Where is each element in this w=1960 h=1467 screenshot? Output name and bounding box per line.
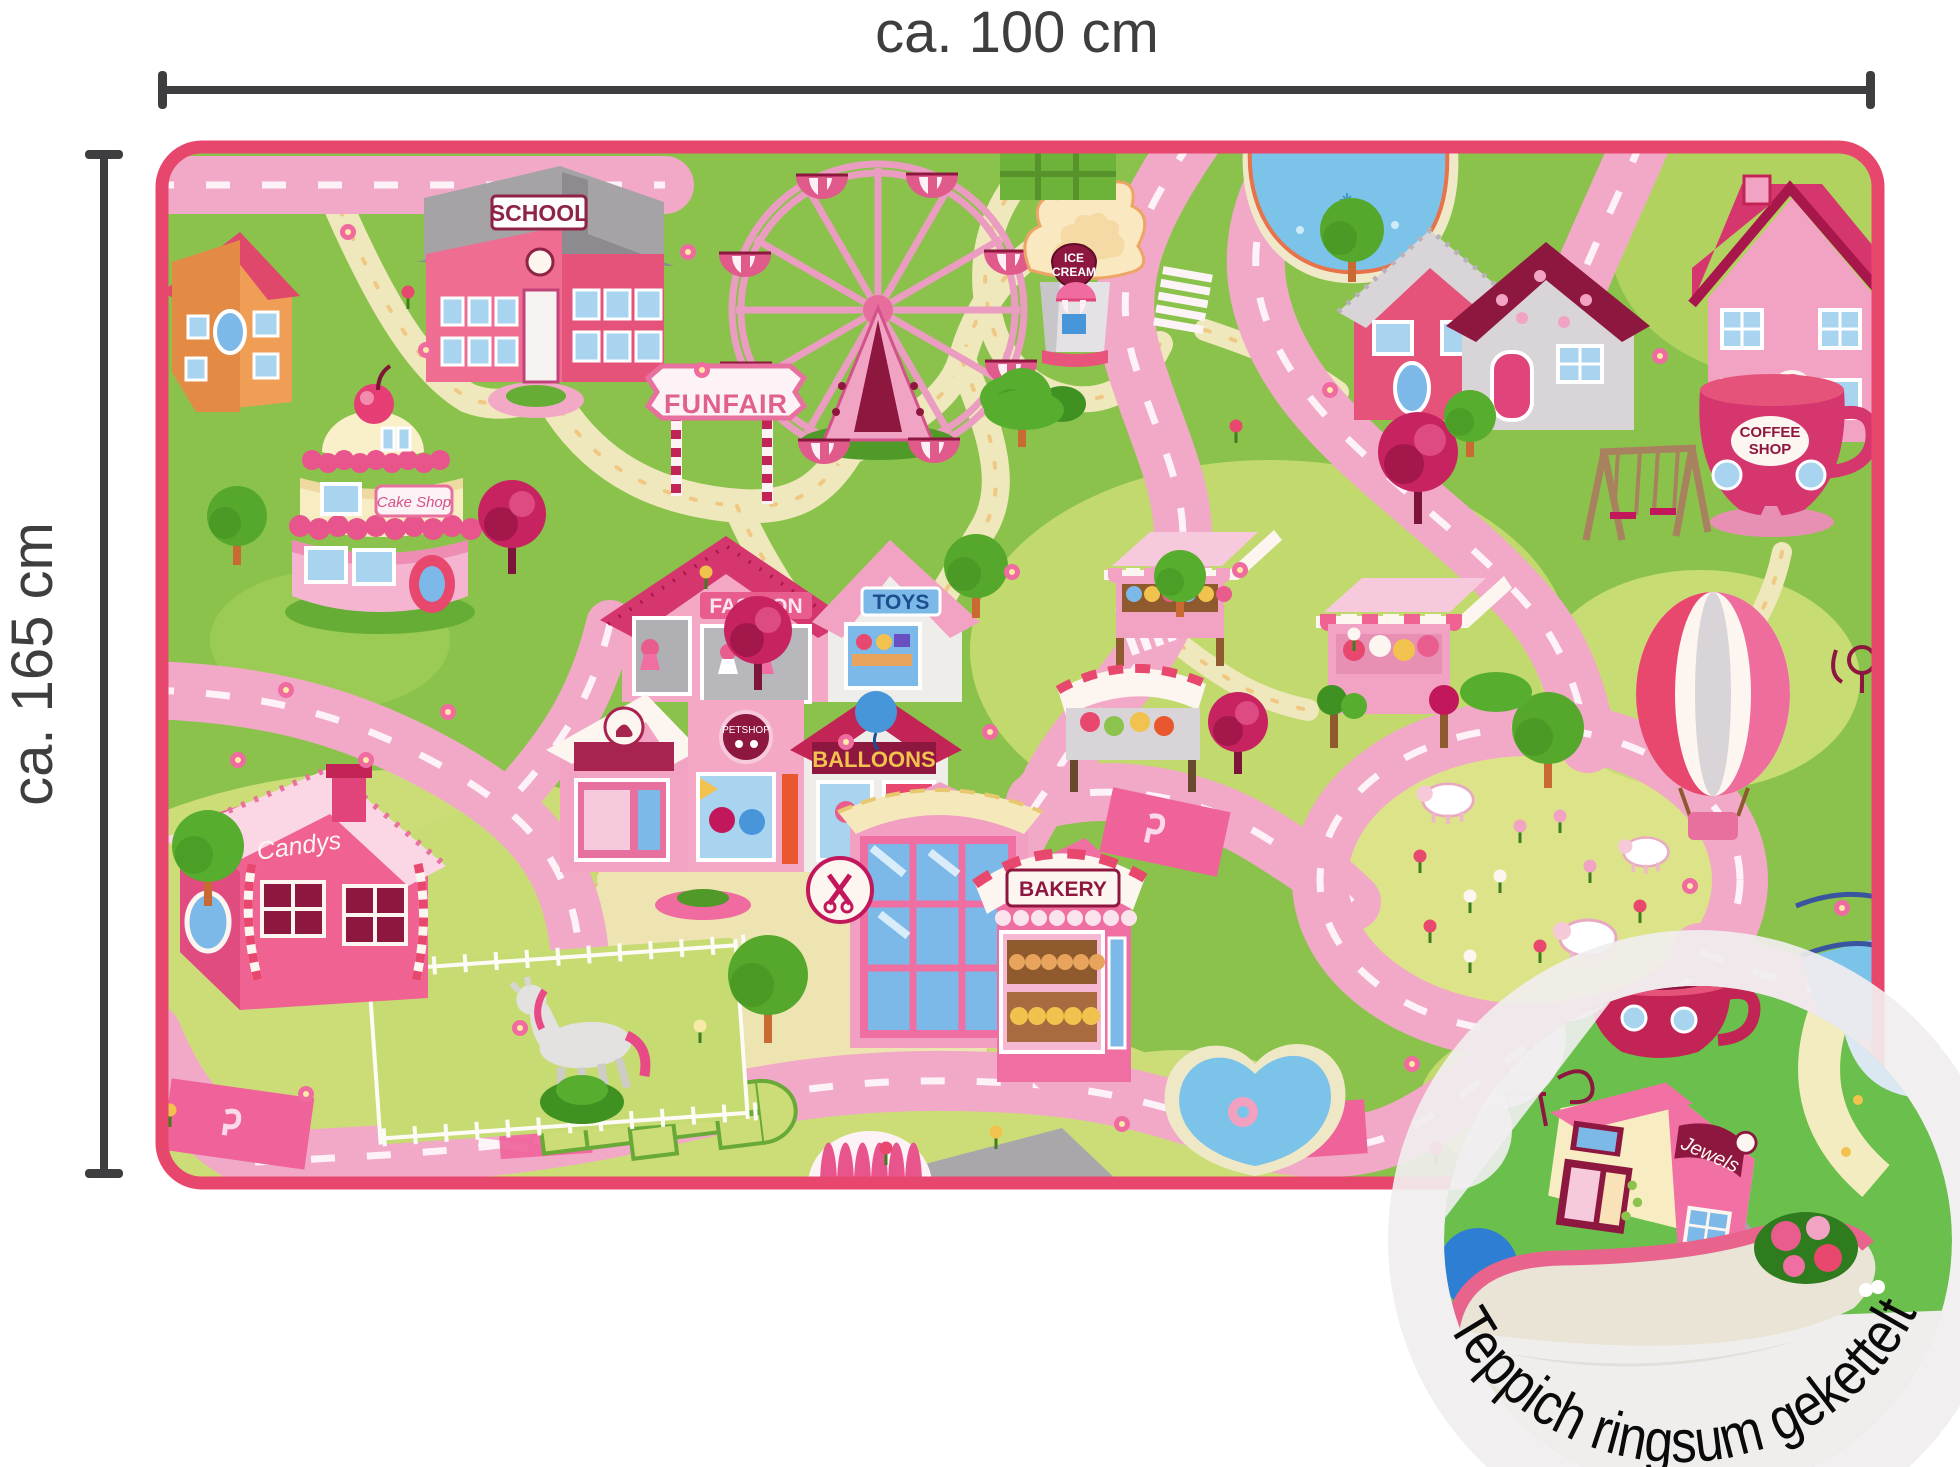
svg-text:BALLOONS: BALLOONS [812, 747, 935, 772]
svg-text:PETSHOP: PETSHOP [722, 725, 770, 736]
svg-text:CREAM: CREAM [1052, 265, 1096, 279]
svg-text:SHOP: SHOP [1749, 441, 1792, 458]
svg-text:Cake Shop: Cake Shop [377, 494, 451, 511]
svg-text:BAKERY: BAKERY [1019, 878, 1107, 901]
svg-text:COFFEE: COFFEE [1740, 424, 1801, 441]
svg-text:ca. 100 cm: ca. 100 cm [875, 0, 1159, 65]
svg-text:TOYS: TOYS [873, 591, 930, 614]
svg-text:ICE: ICE [1064, 251, 1084, 265]
svg-text:SCHOOL: SCHOOL [490, 200, 588, 226]
svg-text:ca. 165 cm: ca. 165 cm [0, 522, 65, 806]
svg-text:FUNFAIR: FUNFAIR [664, 389, 788, 419]
